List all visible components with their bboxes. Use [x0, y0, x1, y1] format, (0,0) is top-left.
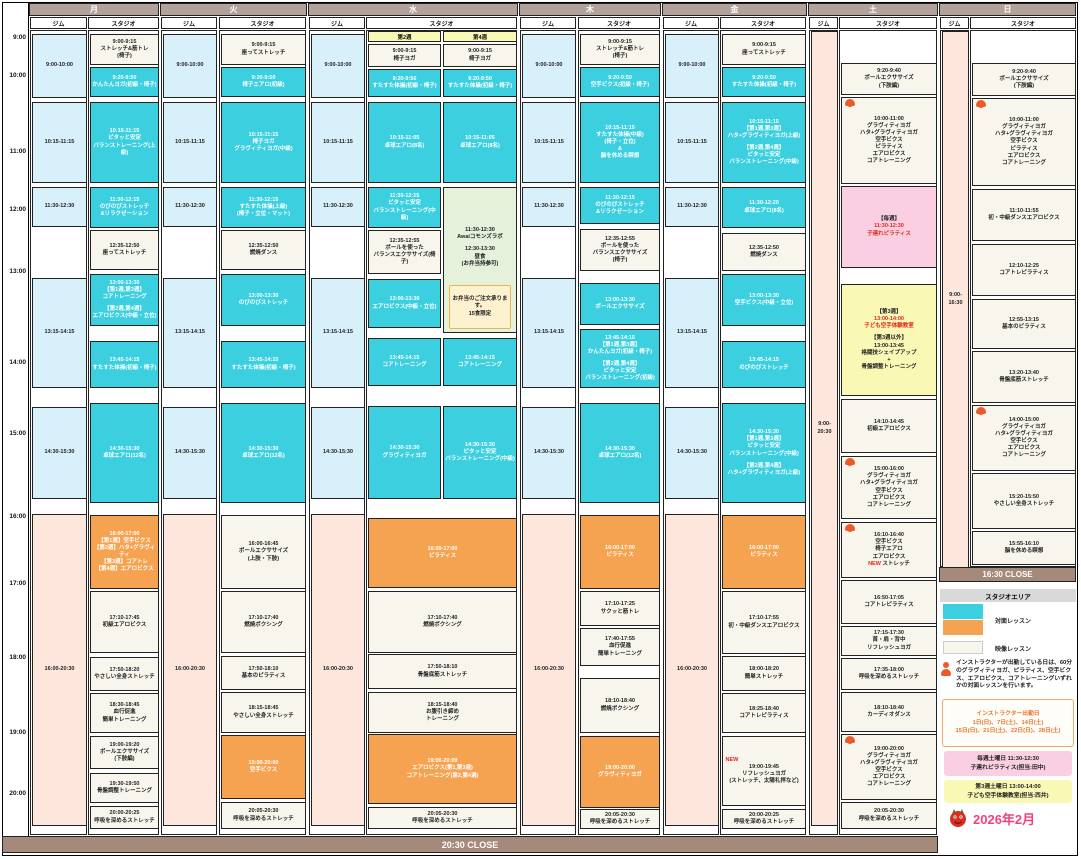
event-line: 13:45-14:15 — [370, 355, 439, 362]
instructor-icon — [845, 101, 937, 106]
event-line: ストレッチ&筋トレ — [92, 46, 157, 53]
event-line: (下肢編) — [92, 756, 157, 763]
schedule-event: 16:50-17:05コアトレピラティス — [841, 580, 937, 624]
day-header-5: 土 — [808, 3, 938, 16]
event-line: 【第3週以外】 — [843, 335, 935, 342]
event-line: 座ってストレッチ — [92, 250, 157, 257]
month-row: 2026年2月 — [948, 805, 1076, 831]
schedule-event: 13:15-14:15 — [32, 278, 87, 388]
event-line: 11:30-12:30 — [524, 203, 574, 210]
event-line: 10:15-11:15 — [165, 139, 215, 146]
event-line: 14:30-15:30 — [445, 442, 515, 449]
attendance-dates-2: 15日(日)、21日(土)、22日(日)、28日(土) — [943, 727, 1073, 736]
schedule-event: 9:00-10:00 — [311, 34, 365, 98]
event-line: 15:20-15:50 — [974, 494, 1074, 501]
event-line: 呼吸を深めるストレッチ — [724, 819, 804, 826]
event-line: 20:05-20:30 — [582, 812, 658, 819]
event-line: 11:30-12:30 — [165, 203, 215, 210]
track-label: スタジオ — [88, 17, 159, 29]
event-line: (ストレッチ、太陽礼拝など) — [724, 778, 804, 785]
event-line: 9:00-10:00 — [34, 62, 85, 69]
event-line: 【第1週,第3週】 — [92, 287, 157, 294]
event-line: 基本のピラティス — [974, 324, 1074, 331]
schedule-event: 12:35-12:55ボールを使ったバランスエクササイズ(椅子) — [580, 229, 660, 271]
track-label: スタジオ — [839, 17, 937, 29]
event-line: 13:15-14:15 — [313, 329, 363, 336]
event-line: 19:00-20:00 — [223, 760, 304, 767]
schedule-event: 14:30-15:30 — [665, 407, 719, 499]
event-line: 血行促進 — [92, 709, 157, 716]
event-line: 椅子ヨガ — [445, 56, 515, 63]
schedule-event: 9:20-9:50かんたんヨガ(初級・椅子) — [90, 67, 159, 97]
event-line: 簡単トレーニング — [92, 717, 157, 724]
event-line: 初級エアロビクス — [843, 426, 935, 433]
event-line: 12:35-12:55 — [370, 238, 439, 245]
schedule-event: 9:00-10:00 — [665, 34, 719, 98]
event-line: 13:00-13:30 — [92, 280, 157, 287]
schedule-event: 13:00-13:30【第1週,第3週】コアトレーニング【第2週,第4週】エアロ… — [90, 274, 159, 326]
track-label: スタジオ — [720, 17, 806, 29]
schedule-event: 17:10-17:55初・中級ダンスエアロビクス — [722, 591, 806, 654]
event-line: やさしい全身ストレッチ — [92, 674, 157, 681]
event-line: 9:00-10:00 — [313, 62, 363, 69]
schedule-event: 9:00-10:00 — [163, 34, 217, 98]
gym-track: 9:00-10:0010:15-11:1511:30-12:3013:15-14… — [663, 30, 719, 835]
event-line: 14:30-15:30 — [313, 449, 363, 456]
hour-label: 10:00 — [2, 72, 26, 79]
event-line: 13:15-14:15 — [667, 329, 717, 336]
event-line: バランストレーニング(初級) — [582, 375, 658, 382]
event-line: ピラティス — [724, 552, 804, 559]
schedule-event: 11:30-12:15のびのびストレッチ&リラクゼーション — [90, 187, 159, 228]
event-line: お腹引き締め — [370, 709, 515, 716]
event-line: 血行促進 — [582, 643, 658, 650]
schedule-event: 10:15-11:15すたすた体操(中級)(椅子・立位)&脳を休める瞑想 — [580, 102, 660, 183]
schedule-event: 17:10-17:40燃焼ボクシング — [368, 591, 517, 653]
hour-label: 11:00 — [2, 148, 26, 155]
day-header-6: 日 — [939, 3, 1076, 16]
event-line: 昼食 — [445, 254, 515, 261]
schedule-event: 9:00-9:15ストレッチ&筋トレ(椅子) — [90, 34, 159, 65]
event-line: 10:15-11:15 — [724, 119, 804, 126]
event-line: 呼吸を深めるストレッチ — [223, 816, 304, 823]
schedule-event: 14:30-15:30グラヴィティヨガ — [368, 406, 441, 499]
event-line: 簡単トレーニング — [582, 651, 658, 658]
schedule-event: 12:35-12:50燃焼ダンス — [221, 230, 306, 270]
schedule-event: 20:05-20:30呼吸を深めるストレッチ — [841, 802, 937, 829]
event-line: 20:05-20:30 — [370, 811, 515, 818]
schedule-event: 10:15-11:15【第1週,第3週】ハタ+グラヴィティヨガ(上級)【第2週,… — [722, 102, 806, 183]
track-label: ジム — [30, 17, 87, 29]
schedule-event: 16:00-20:30 — [311, 514, 365, 826]
event-line: 10:15-11:15 — [313, 139, 363, 146]
hour-label: 17:00 — [2, 580, 26, 587]
event-line: + — [843, 357, 935, 364]
schedule-event: 13:00-13:30空手ビクス(中級・立位) — [722, 274, 806, 326]
event-line: 【第1週,第3週】 — [724, 126, 804, 133]
weekly-schedule-board: 20:30 CLOSE 16:30 CLOSE スタジオエリア 対面レッスン 映… — [0, 0, 1081, 859]
event-line: グラヴィティヨガ — [843, 123, 935, 130]
schedule-event: 13:15-14:15 — [311, 278, 365, 388]
schedule-event: 18:00-18:20簡単ストレッチ — [722, 656, 806, 691]
event-line: バランストレーニング(中級) — [445, 456, 515, 463]
event-line: 燃焼ボクシング — [582, 706, 658, 713]
schedule-event: 14:00-15:00グラヴィティヨガハタ+グラヴィティヨガ空手ビクスエアロビク… — [972, 405, 1076, 471]
event-line: 12:35-12:50 — [92, 243, 157, 250]
event-line: 9:00-9:15 — [223, 42, 304, 49]
schedule-event: 11:30-12:15すたすた体操(上級)(椅子・立位・マット) — [221, 187, 306, 228]
studio-track: 9:00-9:15座ってストレッチ9:20-9:50椅子エアロ(初級)10:15… — [219, 30, 306, 835]
schedule-event: 16:00-17:00【第1週】空手ビクス【第2週】ハタ+グラヴィティ【第3週】… — [90, 515, 159, 589]
studio-track: 9:00-9:15ストレッチ&筋トレ(椅子)9:20-9:50空手ビクス(初級・… — [578, 30, 660, 835]
event-line: コアトレーニング — [843, 781, 935, 788]
event-line: 初・中級ダンスエアロビクス — [724, 623, 804, 630]
schedule-event: 19:00-20:00グラヴィティヨガハタ+グラヴィティヨガ空手ビクスエアロビク… — [841, 734, 937, 800]
studio-track: 9:00-9:15ストレッチ&筋トレ(椅子)9:20-9:50かんたんヨガ(初級… — [88, 30, 159, 835]
schedule-event: 13:15-14:15 — [522, 278, 576, 388]
event-line: 10:15-11:05 — [370, 135, 439, 142]
event-line: 16:00-20:30 — [165, 666, 215, 673]
kids-karate-note: 第3週土曜日 13:00-14:00 子ども空手体験教室(担当:西井) — [944, 780, 1072, 803]
event-line: 13:00-13:30 — [370, 296, 439, 303]
event-line: 10:15-11:15 — [667, 139, 717, 146]
schedule-event: 11:30-12:15ピタッと安定バランストレーニング(中級) — [368, 187, 441, 228]
event-line: バランスエクササイズ(椅子) — [370, 252, 439, 266]
day-header-2: 水 — [308, 3, 518, 16]
schedule-event: 13:00-13:30のびのびストレッチ — [221, 274, 306, 326]
event-line: コアトレーニング — [843, 158, 935, 165]
schedule-event: 17:10-17:25サクッと筋トレ — [580, 591, 660, 626]
schedule-event: 16:00-17:00ピラティス — [368, 518, 517, 588]
event-line: 10:00-11:00 — [843, 116, 935, 123]
event-line: コアトレーニング — [370, 362, 439, 369]
event-line: 10:15-11:15 — [524, 139, 574, 146]
event-line: ハタ+グラヴィティヨガ — [843, 130, 935, 137]
schedule-event: 16:00-20:30 — [163, 514, 217, 826]
track-label: ジム — [520, 17, 576, 29]
event-line: 11:30-12:30 — [843, 223, 935, 230]
instructor-icon — [845, 460, 937, 465]
schedule-event: 20:05-20:30呼吸を深めるストレッチ — [221, 802, 306, 829]
event-line: すたすた体操(初級・椅子) — [445, 83, 515, 90]
event-line: (椅子) — [582, 53, 658, 60]
event-line: すたすた体操(初級・椅子) — [223, 365, 304, 372]
event-line: 基本のピラティス — [223, 673, 304, 680]
live-lesson-swatch-teal — [943, 604, 983, 619]
track-label: スタジオ — [366, 17, 517, 29]
event-line: (下肢編) — [974, 83, 1074, 90]
studio-track: 9:00-9:15座ってストレッチ9:20-9:50すたすた体操(初級・椅子)1… — [720, 30, 806, 835]
schedule-event: 10:15-11:05卓球エアロ(8名) — [443, 102, 517, 183]
schedule-event: NEW19:00-19:45リフレッシュヨガ(ストレッチ、太陽礼拝など) — [722, 736, 806, 806]
event-line: すたすた体操(中級) — [582, 132, 658, 139]
track-label: ジム — [161, 17, 217, 29]
event-line: 9:20-9:50 — [582, 75, 658, 82]
video-lesson-swatch — [943, 641, 983, 654]
schedule-event: 13:45-14:15コアトレーニング — [368, 338, 441, 386]
event-line: 骨盤底筋ストレッチ — [370, 672, 515, 679]
hour-label: 9:00 — [2, 34, 26, 41]
event-line: 燃焼ボクシング — [223, 622, 304, 629]
event-line: 19:00-20:00 — [843, 746, 935, 753]
track-label: スタジオ — [219, 17, 306, 29]
event-line: 17:10-17:40 — [223, 615, 304, 622]
schedule-event: 10:15-11:15 — [163, 102, 217, 183]
schedule-event: 16:00-20:30 — [32, 514, 87, 826]
event-line: 10:15-11:15 — [582, 125, 658, 132]
event-line: 9:20-9:50 — [92, 75, 157, 82]
event-line: すたすた体操(上級) — [223, 204, 304, 211]
event-line: のびのびストレッチ — [223, 300, 304, 307]
schedule-event: 9:20-9:40ボールエクササイズ(下肢編) — [972, 63, 1076, 96]
event-line: 空手ビクス — [974, 138, 1074, 145]
schedule-event: 20:05-20:30呼吸を深めるストレッチ — [368, 807, 517, 829]
event-line: ピタッと安定 — [724, 443, 804, 450]
schedule-event: 14:30-15:30 — [163, 407, 217, 499]
schedule-event: 16:00-20:30 — [665, 514, 719, 826]
event-line: グラヴィティヨガ — [843, 753, 935, 760]
event-line: 9:00-9:15 — [92, 39, 157, 46]
schedule-event: 9:00-9:15ストレッチ&筋トレ(椅子) — [580, 34, 660, 65]
event-line: 16:00-20:30 — [524, 666, 574, 673]
event-line: 呼吸を深めるストレッチ — [843, 816, 935, 823]
hour-label: 14:00 — [2, 359, 26, 366]
event-line: 10:15-11:15 — [34, 139, 85, 146]
schedule-event: 17:40-17:55血行促進簡単トレーニング — [580, 628, 660, 666]
event-line: 12:55-13:15 — [974, 317, 1074, 324]
schedule-event: 12:35-12:50座ってストレッチ — [90, 230, 159, 270]
event-line: 13:45-14:15 — [223, 357, 304, 364]
event-line: コアトレピラティス — [724, 713, 804, 720]
schedule-event: 9:20-9:50すたすた体操(初級・椅子) — [368, 69, 441, 97]
event-line: 17:35-18:00 — [843, 667, 935, 674]
event-line: 座ってストレッチ — [724, 50, 804, 57]
event-line: 17:50-18:20 — [92, 667, 157, 674]
event-line: ボールエクササイズ — [92, 749, 157, 756]
schedule-event: 9:20-9:50椅子エアロ(初級) — [221, 67, 306, 97]
event-line: バランストレーニング(中級) — [724, 159, 804, 166]
event-line: ピラティス — [370, 553, 515, 560]
day-header-3: 木 — [519, 3, 661, 16]
schedule-event: 9:00-10:00 — [522, 34, 576, 98]
event-line: (椅子・立位) — [582, 139, 658, 146]
event-line: エアロビクス — [843, 495, 935, 502]
event-line: 18:10-18:40 — [843, 705, 935, 712]
schedule-event: 19:00-20:00グラヴィティヨガ — [580, 736, 660, 808]
schedule-event: 【第3週】13:00-14:00子ども空手体験教室【第3週以外】13:00-13… — [841, 284, 937, 396]
event-line: 卓球エアロ(8名) — [445, 143, 515, 150]
event-line: グラヴィティヨガ — [370, 453, 439, 460]
schedule-event: 18:30-18:45血行促進簡単トレーニング — [90, 693, 159, 733]
schedule-event: 13:45-14:15【第1週,第3週】かんたんヨガ(初級・椅子)【第2週,第4… — [580, 329, 660, 388]
close-bar-weekdays: 20:30 CLOSE — [2, 836, 938, 853]
event-line: 12:30-13:30 — [445, 246, 515, 253]
schedule-event: 9:00-16:30 — [942, 31, 969, 568]
event-line: 13:15-14:15 — [524, 329, 574, 336]
event-line: コアトレーニング — [445, 362, 515, 369]
event-line: 空手ビクス — [843, 488, 935, 495]
schedule-event: 20:00-20:25呼吸を深めるストレッチ — [722, 809, 806, 829]
event-line: ボールを使った — [582, 243, 658, 250]
schedule-event: 14:30-15:30 — [522, 407, 576, 499]
event-line: 呼吸を深めるストレッチ — [370, 818, 515, 825]
event-line: 14:30-15:30 — [370, 445, 439, 452]
schedule-event: 19:00-20:00エアロビクス(第1,第3週)コアトレーニング(第2,第4週… — [368, 734, 517, 804]
event-line: 19:00-19:45 — [724, 764, 804, 771]
schedule-event: 14:30-15:30卓球エアロ(12名) — [580, 403, 660, 503]
schedule-event: 10:15-11:15 — [665, 102, 719, 183]
event-line: コアトレピラティス — [974, 270, 1074, 277]
schedule-event: 17:50-18:10骨盤底筋ストレッチ — [368, 654, 517, 689]
event-line: グラヴィティヨガ(中級) — [223, 146, 304, 153]
event-line: 脳を休める瞑想 — [582, 153, 658, 160]
schedule-event: 13:15-14:15 — [665, 278, 719, 388]
track-label: ジム — [940, 17, 969, 29]
event-line: グラヴィティヨガ — [974, 424, 1074, 431]
event-line: コアトレーニング — [92, 294, 157, 301]
oni-icon — [948, 808, 968, 828]
event-line: 11:30-12:30 — [313, 203, 363, 210]
event-line: 椅子エアロ — [843, 546, 935, 553]
event-line: 卓球エアロ(8名) — [370, 143, 439, 150]
hour-label: 13:00 — [2, 268, 26, 275]
event-line: 11:30-12:30 — [34, 203, 85, 210]
hour-label: 20:00 — [2, 790, 26, 797]
event-line: &リラクゼーション — [582, 209, 658, 216]
schedule-event: 13:45-14:15すたすた体操(初級・椅子) — [221, 341, 306, 388]
event-line: エアロビクス — [843, 554, 935, 561]
event-line: 椅子ヨガ — [370, 56, 439, 63]
event-line: ハタ+グラヴィティヨガ — [843, 760, 935, 767]
schedule-event: 10:15-11:15 — [522, 102, 576, 183]
close-bar-sunday: 16:30 CLOSE — [939, 567, 1076, 582]
event-line: 18:10-18:40 — [582, 698, 658, 705]
event-line: NEW ストレッチ — [843, 561, 935, 568]
schedule-event: 19:00-20:00空手ビクス — [221, 735, 306, 799]
instructor-attendance-box: インストラクター出勤日 1日(日)、7日(土)、14日(土) 15日(日)、21… — [942, 699, 1074, 747]
event-line: 19:30-19:50 — [92, 781, 157, 788]
event-line: 17:10-17:40 — [370, 615, 515, 622]
event-line: 座ってストレッチ — [223, 50, 304, 57]
schedule-event: 19:00-19:20ボールエクササイズ(下肢編) — [90, 736, 159, 769]
schedule-event: 9:00-9:15座ってストレッチ — [221, 34, 306, 65]
gym-track: 9:00-10:0010:15-11:1511:30-12:3013:15-14… — [161, 30, 217, 835]
event-line: 15食限定 — [451, 311, 509, 318]
event-line: 13:15-14:15 — [165, 329, 215, 336]
event-line: コアトレピラティス — [843, 602, 935, 609]
event-line: 骨盤調整トレーニング — [843, 364, 935, 371]
event-line: 19:00-19:20 — [92, 742, 157, 749]
event-line: ボールエクササイズ — [843, 75, 935, 82]
event-line: ピタッと安定 — [370, 200, 439, 207]
event-line: 空手ビクス — [223, 767, 304, 774]
event-line: (椅子・立位・マット) — [223, 211, 304, 218]
event-line: リフレッシュヨガ — [843, 645, 935, 652]
schedule-event: 16:00-16:45ボールエクササイズ(上肢・下肢) — [221, 515, 306, 589]
schedule-event: 13:20-13:40骨盤底筋ストレッチ — [972, 351, 1076, 403]
schedule-event: 16:00-20:30 — [522, 514, 576, 826]
event-line: 9:00-10:00 — [524, 62, 574, 69]
event-line: やさしい全身ストレッチ — [974, 501, 1074, 508]
schedule-event: 17:10-17:45初級エアロビクス — [90, 591, 159, 653]
event-line: お弁当のご注文承ります。 — [451, 296, 509, 310]
studio-track: 9:20-9:40ボールエクササイズ(下肢編)10:00-11:00グラヴィティ… — [839, 30, 937, 835]
event-line: すたすた体操(初級・椅子) — [92, 365, 157, 372]
hour-label: 19:00 — [2, 729, 26, 736]
schedule-event: 15:20-15:50やさしい全身ストレッチ — [972, 473, 1076, 529]
instructor-icon — [845, 526, 937, 531]
attendance-dates-1: 1日(日)、7日(土)、14日(土) — [943, 719, 1073, 728]
event-line: (椅子) — [92, 53, 157, 60]
instructor-note: インストラクターが出勤している日は、60分のグラヴィティヨガ、ピラティス、空手ビ… — [956, 660, 1076, 691]
studio-area-legend-title: スタジオエリア — [940, 589, 1076, 602]
schedule-event: 9:00-9:15椅子ヨガ — [443, 44, 517, 67]
event-line: 卓球エアロ(12名) — [223, 453, 304, 460]
event-line: 11:30-12:15 — [92, 197, 157, 204]
schedule-event: 11:30-12:30 — [311, 187, 365, 227]
event-line: 17:50-18:10 — [223, 666, 304, 673]
event-line: 17:10-17:45 — [92, 615, 157, 622]
schedule-event: 10:15-11:15ピタッと安定バランストレーニング(上級) — [90, 102, 159, 183]
gym-track: 9:00-20:30 — [809, 30, 838, 835]
event-line: 9:00-20:30 — [813, 421, 836, 435]
live-lesson-swatch-orange — [943, 620, 983, 635]
event-line: 16:00-17:00 — [724, 545, 804, 552]
hour-label: 12:00 — [2, 206, 26, 213]
gym-track: 9:00-10:0010:15-11:1511:30-12:3013:15-14… — [309, 30, 365, 835]
event-line: 14:00-15:00 — [974, 417, 1074, 424]
event-line: 骨盤底筋ストレッチ — [974, 377, 1074, 384]
event-line: コアトレーニング(第2,第4週) — [370, 773, 515, 780]
event-line: 空手ビクス — [843, 137, 935, 144]
event-line: ボールエクササイズ — [582, 304, 658, 311]
event-line: 16:00-20:30 — [313, 666, 363, 673]
event-line: 18:25-18:40 — [724, 706, 804, 713]
event-line: エアロビクス(第1,第3週) — [370, 765, 515, 772]
track-label: ジム — [809, 17, 838, 29]
event-line: 13:15-14:15 — [34, 329, 85, 336]
schedule-event: 17:50-18:10基本のピラティス — [221, 656, 306, 690]
event-line: 呼吸を深めるストレッチ — [92, 818, 157, 825]
schedule-event: 11:30-12:30 — [163, 187, 217, 227]
schedule-event: 11:30-12:30 — [522, 187, 576, 227]
schedule-event: 11:30-12:30 — [32, 187, 87, 227]
event-line: 子連れピラティス — [843, 231, 935, 238]
schedule-event: 13:00-13:30ボールエクササイズ — [580, 283, 660, 325]
event-line: 燃焼ダンス — [223, 250, 304, 257]
event-line: カーディオダンス — [843, 712, 935, 719]
event-line: 9:20-9:40 — [974, 69, 1074, 76]
event-line: ハタ+グラヴィティヨガ — [974, 431, 1074, 438]
event-line: のびのびストレッチ — [92, 204, 157, 211]
schedule-event: 18:15-18:45やさしい全身ストレッチ — [221, 692, 306, 733]
event-line: エアロビクス(中級・立位) — [370, 304, 439, 311]
schedule-event: 18:10-18:40燃焼ボクシング — [580, 678, 660, 733]
event-line: トレーニング — [370, 716, 515, 723]
schedule-event: 13:45-14:15のびのびストレッチ — [722, 341, 806, 388]
event-line: 13:00-13:30 — [223, 293, 304, 300]
month-label: 2026年2月 — [973, 809, 1035, 828]
schedule-event: 17:15-17:30首・肩・背中リフレッシュヨガ — [841, 626, 937, 656]
event-line: 15:55-16:10 — [974, 541, 1074, 548]
saturday-pilates-note: 毎週土曜日 11:30-12:30 子連れピラティス(担当:田中) — [944, 751, 1072, 776]
event-line: ピタッと安定 — [92, 135, 157, 142]
event-line: のびのびストレッチ — [582, 202, 658, 209]
schedule-event: 13:00-13:30エアロビクス(中級・立位) — [368, 279, 441, 328]
event-line: 卓球エアロ(12名) — [582, 453, 658, 460]
event-line: 11:30-12:15 — [223, 197, 304, 204]
event-line: 脳を休める瞑想 — [974, 548, 1074, 555]
